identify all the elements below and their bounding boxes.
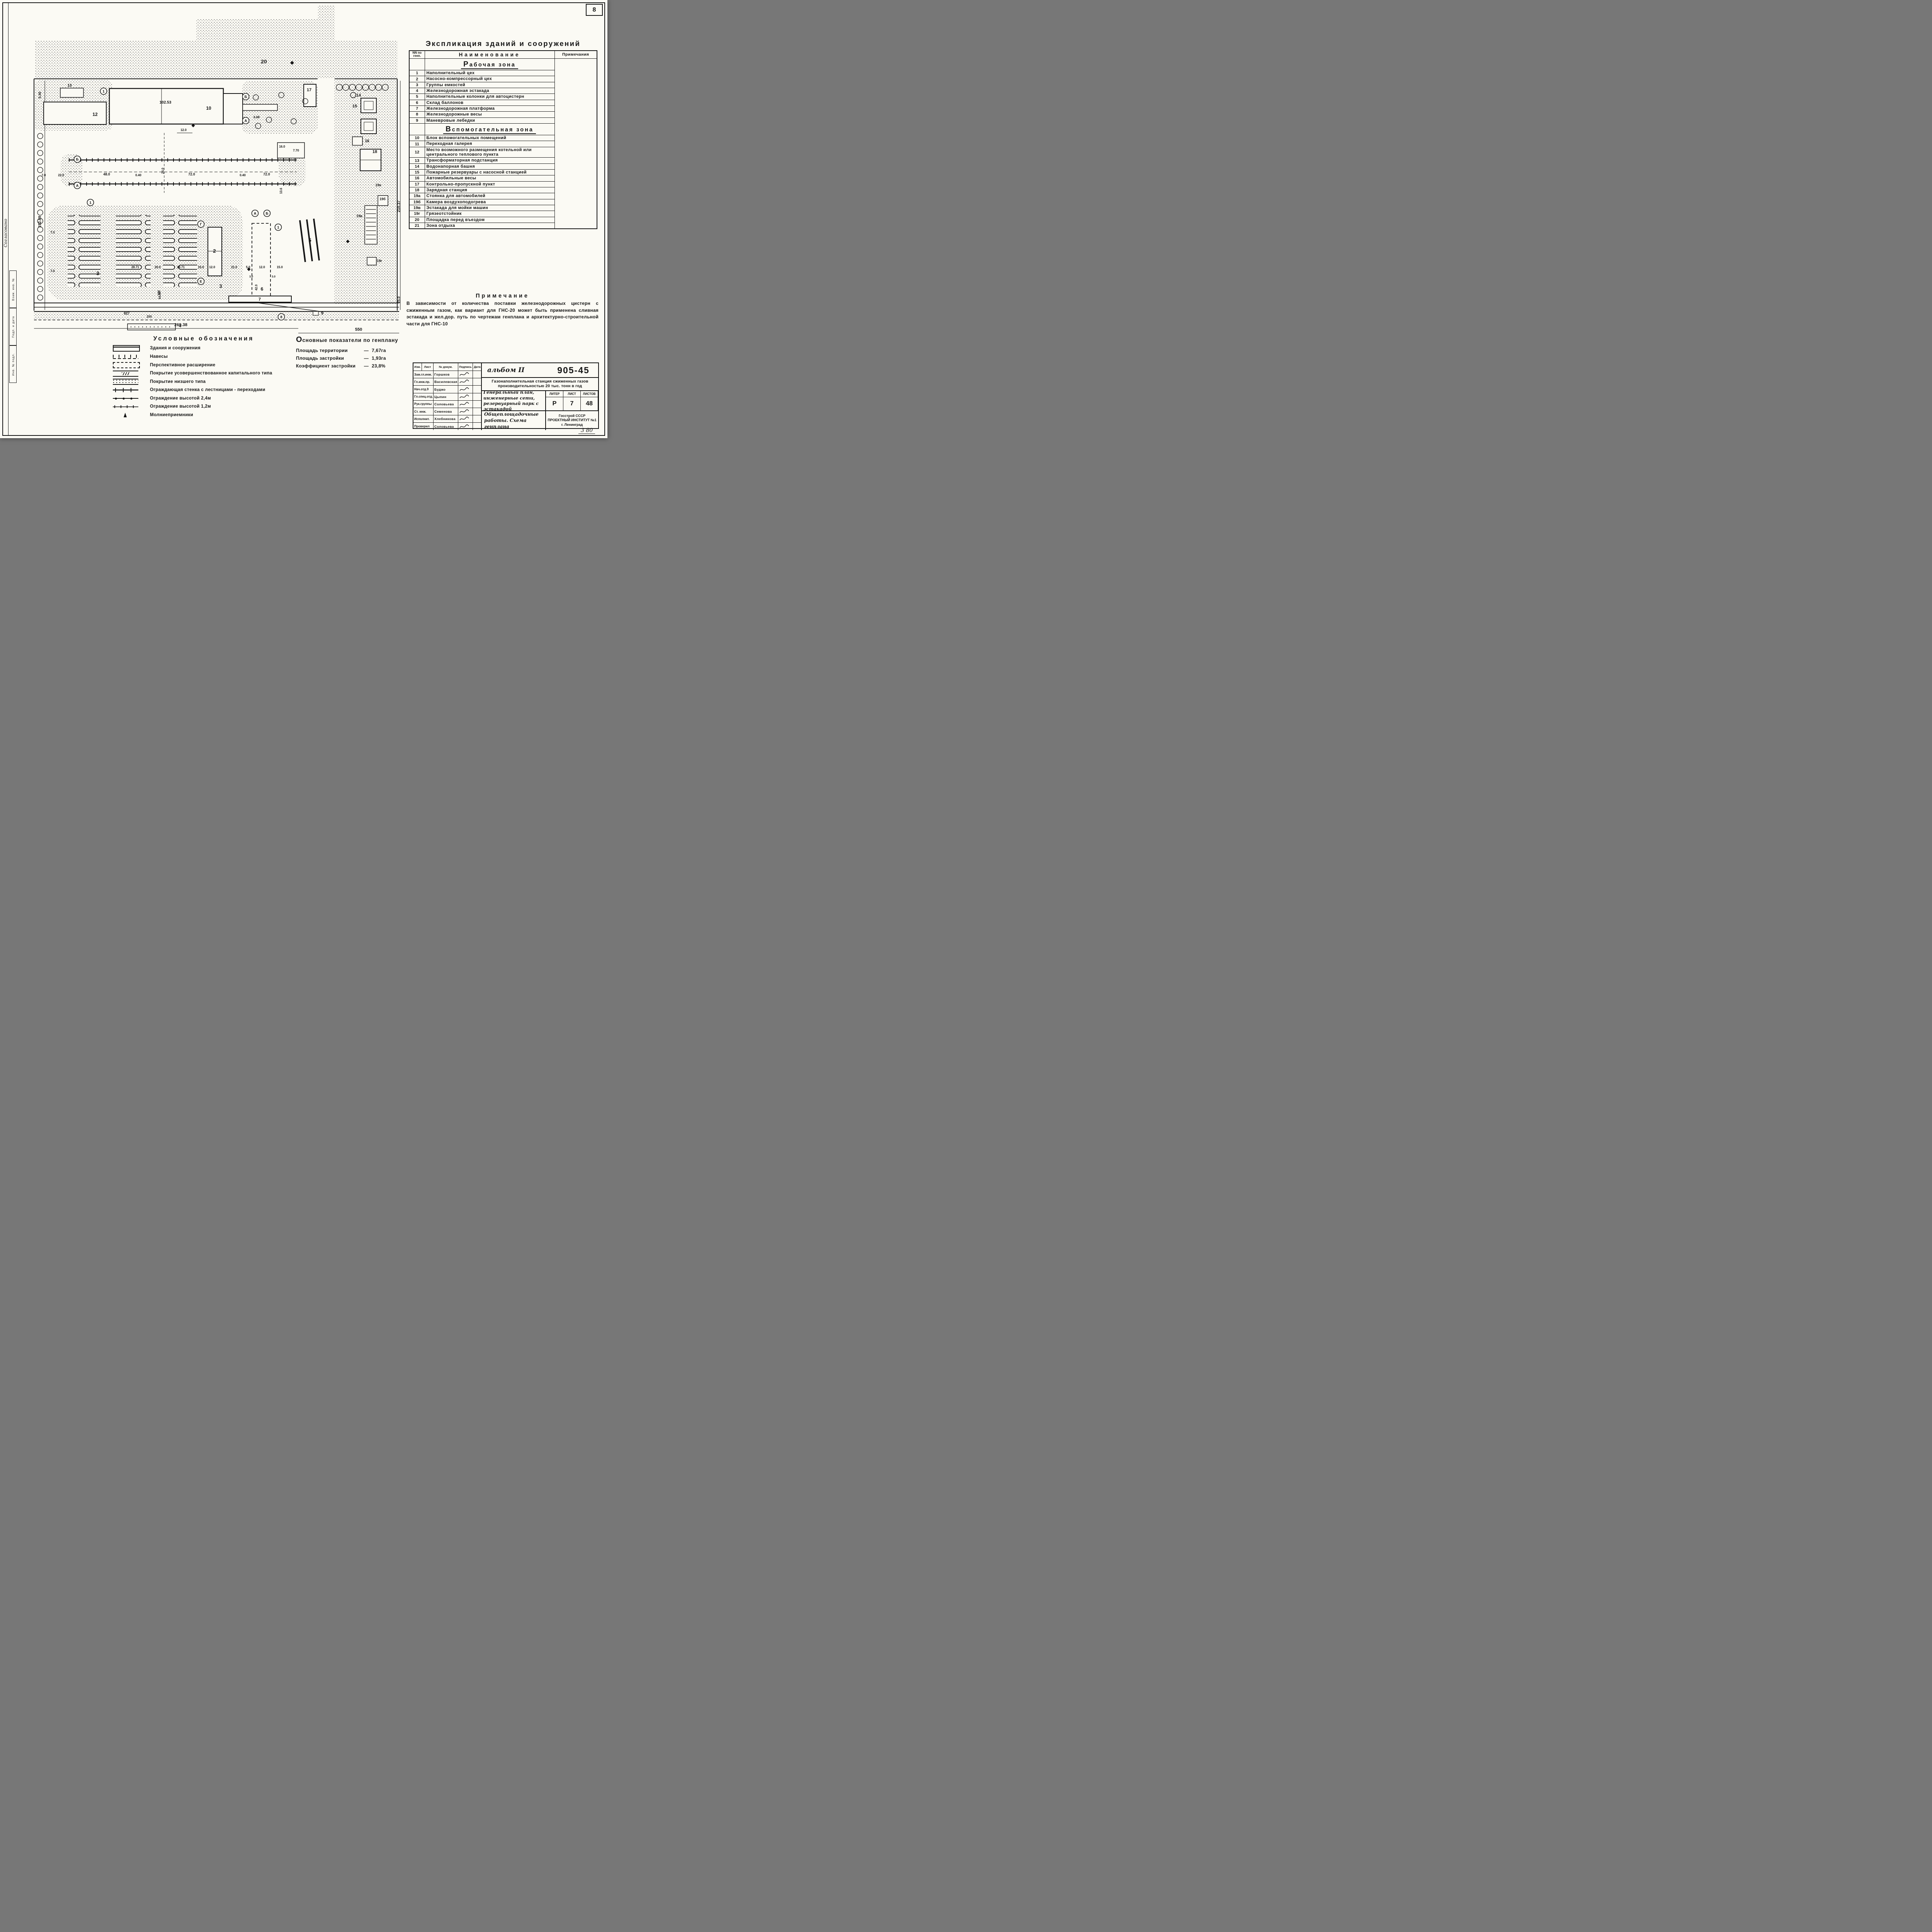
row-name: Грязеотстойник — [425, 211, 554, 217]
plan-label: 72.0 — [263, 172, 270, 176]
inventory-box: Подп. и дата — [9, 308, 17, 345]
stamp-name: Соловьева — [434, 423, 458, 430]
svg-text:Б: Б — [245, 95, 247, 99]
axis-marker: Г — [198, 221, 204, 228]
sheet-frame-inner-line — [8, 2, 9, 436]
stamp-date — [473, 378, 482, 385]
note-text: В зависимости от количества поставки жел… — [406, 300, 599, 328]
stamp-role: Нач.отд.9 — [413, 386, 434, 393]
pav-cap-symbol-icon — [113, 371, 138, 377]
plan-label: 2 — [213, 248, 216, 254]
col-header-name: Наименование — [425, 51, 554, 58]
plan-label: 0.40 — [135, 173, 141, 177]
liter-head-cell: ЛИТЕР — [546, 391, 563, 397]
project-title: Газонаполнительная станция сжиженных газ… — [482, 378, 598, 391]
plan-label: 102.53 — [160, 100, 172, 105]
legend-title: Условные обозначения — [113, 335, 294, 342]
project-code: 905-45 — [549, 363, 598, 377]
stamp-role: Ст. инж. — [413, 408, 434, 415]
title-block-signatures: Изм.Лист№ докум.ПодписьДата Зам.гл.инж.Г… — [413, 363, 482, 430]
indicator-value: 1,93га — [372, 355, 386, 361]
stamp-header-cell: Дата — [473, 363, 482, 371]
legend-item-label: Здания и сооружения — [150, 346, 201, 350]
stamp-row: Ст. инж.Семенова — [413, 408, 481, 415]
row-name: Маневровые лебедки — [425, 117, 554, 123]
stamp-role: Рук.группы — [413, 401, 434, 408]
plan-label: 7.70 — [293, 149, 299, 152]
explication-row: 6Склад баллонов — [409, 100, 597, 105]
svg-text:8: 8 — [280, 315, 282, 320]
plan-label: 3 — [96, 270, 99, 276]
axis-marker: 1 — [275, 224, 282, 231]
legend-item: Перспективное расширение — [113, 362, 294, 368]
explication-row: 13Трансформаторная подстанция2КТПН-630/1… — [409, 158, 597, 163]
plan-label: 25.0 — [397, 296, 401, 303]
liter-grid: ЛИТЕРЛИСТЛИСТОВ Р748 — [546, 391, 598, 410]
row-name: Склад баллонов — [425, 100, 554, 105]
axis-marker: А — [74, 182, 81, 189]
row-name: Зарядная станция — [425, 187, 554, 193]
railway-tracks — [34, 303, 399, 311]
row-number: 19в — [409, 205, 425, 211]
svg-text:1: 1 — [89, 201, 92, 205]
stamp-date — [473, 401, 482, 408]
axis-marker: Б — [264, 210, 270, 217]
lightning-rod-icon: ◆ — [346, 238, 350, 244]
stamp-name: Буджо — [434, 386, 458, 393]
plan-label: 7 — [259, 297, 261, 302]
row-name: Насосно-компрессорный цех — [425, 76, 554, 82]
plan-label: 18 — [372, 150, 377, 154]
plan-label: 210.37 — [397, 200, 401, 212]
plan-label: 3.0 — [272, 276, 276, 278]
row-number: 16 — [409, 175, 425, 181]
explication-row: 12Место возможного размещения котельной … — [409, 147, 597, 158]
work-title: Общеплощадочные работы. Схема генплана — [482, 411, 546, 430]
rail-estacade — [69, 133, 304, 193]
legend-item: Навесы — [113, 354, 294, 360]
row-name: Переходная галерея — [425, 141, 554, 147]
plan-label: 827 — [124, 311, 129, 315]
explication-row: 16Автомобильные весытп 416-7-94 — [409, 175, 597, 181]
row-number: 21 — [409, 223, 425, 229]
plan-label: 19г — [377, 259, 382, 263]
plan-label: 100 — [146, 315, 152, 318]
zone-heading-row: Рабочая зона — [409, 58, 597, 70]
explication-row: 10Блок вспомогательных помещений — [409, 135, 597, 141]
sheet-title: Генеральный план, инженерные сети, резер… — [482, 391, 546, 410]
lightning-rod-icon: ◆ — [191, 122, 195, 128]
plan-label: 24.0 — [161, 168, 165, 174]
col-header-note: Примечания — [554, 51, 597, 58]
stamp-name: Соловьева — [434, 401, 458, 408]
plan-label: 5 — [308, 237, 311, 243]
explication-title: Экспликация зданий и сооружений — [409, 39, 597, 48]
row-number: 18 — [409, 187, 425, 193]
row-number: 7 — [409, 105, 425, 111]
axis-marker: Б — [243, 94, 249, 100]
explication-row: 11Переходная галерея — [409, 141, 597, 147]
row-number: 5 — [409, 94, 425, 100]
signature-mark — [458, 423, 473, 430]
row-number: 3 — [409, 82, 425, 88]
stamp-header-cell: Лист — [422, 363, 434, 371]
row-number: 20 — [409, 217, 425, 223]
axis-marker: 1 — [100, 88, 107, 95]
plan-label: 12 — [92, 112, 98, 117]
stamp-row: ПроверилСоловьева — [413, 423, 481, 430]
signature-mark — [458, 371, 473, 378]
plan-label: 12.0 — [209, 265, 215, 269]
legend-item-label: Ограждение высотой 2,4м — [150, 396, 211, 401]
legend-item: Покрытие усовершенствованное капитальног… — [113, 371, 294, 377]
row-name: Трансформаторная подстанция — [425, 158, 554, 163]
row-number: 19а — [409, 193, 425, 199]
explication-row: 7Железнодорожная платформа — [409, 105, 597, 111]
explication-row: 8Железнодорожные весыРС-150Ц 13В — [409, 112, 597, 117]
explication-table: NN по генп. Наименование Примечания Рабо… — [409, 50, 597, 229]
explication-row: 4Железнодорожная эстакада — [409, 88, 597, 94]
plan-label: 16.0 — [279, 145, 285, 148]
legend-item: Ограждающая стенка с лестницами - перехо… — [113, 387, 294, 393]
legend-item-label: Покрытие усовершенствованное капитальног… — [150, 371, 272, 376]
indicators-section: Основные показатели по генплану Площадь … — [296, 335, 412, 371]
row-name: Пожарные резервуары с насосной станцией — [425, 170, 554, 175]
inventory-box: Инв. № подл. — [9, 345, 17, 383]
signature-mark — [458, 393, 473, 400]
indicators-title: Основные показатели по генплану — [296, 335, 412, 344]
legend-item-label: Ограждающая стенка с лестницами - перехо… — [150, 388, 265, 392]
plan-label: 0.40 — [240, 173, 246, 177]
liter-value-cell: Р — [546, 397, 563, 410]
plan-label: 7.0 — [50, 269, 55, 273]
svg-text:А: А — [254, 212, 257, 216]
stamp-role: Исполнит. — [413, 415, 434, 422]
canopy-symbol-icon — [113, 355, 138, 359]
liter-head-cell: ЛИСТОВ — [581, 391, 598, 397]
svg-text:1: 1 — [277, 226, 279, 230]
stamp-date — [473, 371, 482, 378]
row-name: Группы емкостей — [425, 82, 554, 88]
stamp-row: Гл.инж.пр.Василевская — [413, 378, 481, 386]
row-number: 4 — [409, 88, 425, 94]
plan-label: 12.0 — [180, 128, 187, 132]
row-number: 14 — [409, 163, 425, 169]
axis-marker: 1 — [87, 199, 94, 206]
fence12-symbol-icon — [113, 405, 138, 408]
plan-label: 12.0 — [259, 265, 265, 269]
stamp-date — [473, 386, 482, 393]
approval-handwriting: Согласовано — [3, 219, 8, 247]
explication-row: 18Зарядная станциятп 407-9-8 — [409, 187, 597, 193]
plan-label: 4 — [179, 324, 182, 328]
stamp-name: Хлебникова — [434, 415, 458, 422]
plan-label: 19б — [379, 197, 386, 201]
row-name: Зона отдыха — [425, 223, 554, 229]
signature-mark — [458, 378, 473, 385]
row-name: Водонапорная башня — [425, 163, 554, 169]
row-number: 12 — [409, 147, 425, 158]
explication-row: 19вЭстакада для мойки машинтп 503-288 — [409, 205, 597, 211]
zone-heading-row: Вспомогательная зона — [409, 123, 597, 135]
stamp-name: Горшков — [434, 371, 458, 378]
inventory-box: Взам. инв. № — [9, 270, 17, 308]
stamp-header-cell: Подпись — [458, 363, 473, 371]
row-number: 1 — [409, 70, 425, 76]
note-title: Примечание — [406, 293, 599, 299]
liter-value-cell: 7 — [563, 397, 581, 410]
explication-row: 2Насосно-компрессорный цех — [409, 76, 597, 82]
stamp-role: Гл.инж.пр. — [413, 378, 434, 385]
indicator-value: 23,8% — [372, 363, 386, 369]
legend-item-label: Перспективное расширение — [150, 363, 215, 367]
page-number: 8 — [593, 7, 596, 14]
plan-label: 19в — [356, 214, 362, 218]
row-name: Стоянка для автомобилей — [425, 193, 554, 199]
legend-item: Молниеприемники — [113, 412, 294, 418]
row-number: 19б — [409, 199, 425, 205]
stamp-name: Семенова — [434, 408, 458, 415]
stamp-row: Нач.отд.9Буджо — [413, 386, 481, 393]
legend-section: Условные обозначения Здания и сооружения… — [113, 335, 294, 420]
row-name: Наполнительные колонки для автоцистерн — [425, 94, 554, 100]
lightning-rod-icon: ◆ — [290, 60, 294, 65]
row-name: Автомобильные весы — [425, 175, 554, 181]
row-name: Железнодорожные весы — [425, 112, 554, 117]
svg-text:Б: Б — [76, 158, 79, 162]
plan-label: 5.40 — [38, 92, 42, 99]
plan-label: 72.0 — [188, 172, 195, 176]
fence24-symbol-icon — [113, 396, 138, 401]
indicator-row: Площадь территории—7,67га — [296, 348, 412, 353]
plan-label: 42.0 — [255, 284, 258, 291]
row-name: Эстакада для мойки машин — [425, 205, 554, 211]
legend-item-label: Ограждение высотой 1,2м — [150, 404, 211, 409]
legend-item-label: Навесы — [150, 354, 168, 359]
legend-item: Ограждение высотой 2,4м — [113, 395, 294, 401]
plan-label: 3 — [219, 283, 222, 289]
row-number: 6 — [409, 100, 425, 105]
plan-label: 28.71 — [131, 265, 139, 269]
stamp-date — [473, 408, 482, 415]
wall-symbol-icon — [113, 388, 138, 392]
plan-label: 19а — [375, 183, 381, 187]
indicator-value: 7,67га — [372, 348, 386, 353]
legend-item-label: Покрытие низшего типа — [150, 379, 206, 384]
plan-label: 7.0 — [41, 173, 46, 177]
stamp-header-cell: № докум. — [434, 363, 458, 371]
stamp-date — [473, 415, 482, 422]
explication-row: 1Наполнительный цех — [409, 70, 597, 76]
liter-head-cell: ЛИСТ — [563, 391, 581, 397]
title-block-main: альбом II 905-45 Газонаполнительная стан… — [482, 363, 598, 430]
row-name: Блок вспомогательных помещений — [425, 135, 554, 141]
col-header-num: NN по генп. — [409, 51, 425, 58]
axis-marker: 8 — [278, 314, 285, 320]
tank-groups — [68, 215, 197, 287]
row-number: 11 — [409, 141, 425, 147]
plan-label: 6.68 — [253, 116, 260, 119]
axis-marker: А — [252, 210, 259, 217]
explication-row: 5Наполнительные колонки для автоцистерн — [409, 94, 597, 100]
album-label: альбом II — [482, 363, 549, 377]
explication-row: 3Группы емкостей — [409, 82, 597, 88]
future-symbol-icon — [113, 362, 140, 368]
stamp-row: Зам.гл.инж.Горшков — [413, 371, 481, 378]
liter-value-cell: 48 — [581, 397, 598, 410]
svg-text:Е: Е — [200, 280, 202, 284]
plan-label: 7.0 — [50, 231, 55, 234]
plan-label: 20 — [261, 58, 267, 65]
plan-label: 13.6 — [279, 188, 283, 194]
row-number: 10 — [409, 135, 425, 141]
explication-row: 20Площадка перед въездом— — [409, 217, 597, 223]
plan-label: 5.0 — [246, 265, 250, 269]
row-name: Площадка перед въездом — [425, 217, 554, 223]
legend-item: Ограждение высотой 1,2м — [113, 404, 294, 410]
row-name: Железнодорожная платформа — [425, 105, 554, 111]
svg-text:А: А — [245, 119, 247, 123]
signature-mark — [458, 415, 473, 422]
row-name: Контрольно-пропускной пункт — [425, 181, 554, 187]
indicator-label: Площадь застройки — [296, 355, 361, 361]
stamp-row: Исполнит.Хлебникова — [413, 415, 481, 423]
row-number: 9 — [409, 117, 425, 123]
explication-row: 19гГрязеотстойниктп 503-288 — [409, 211, 597, 217]
pav-low-symbol-icon — [113, 379, 138, 385]
stamp-role: Зам.гл.инж. — [413, 371, 434, 378]
plan-label: 13 — [67, 83, 72, 88]
plan-label: 22.0 — [58, 173, 64, 177]
legend-item: Здания и сооружения — [113, 345, 294, 352]
indicator-label: Коэффициент застройки — [296, 363, 361, 369]
signature-mark — [458, 386, 473, 393]
explication-row: 19аСтоянка для автомобилейтп 503-138 — [409, 193, 597, 199]
signature-mark — [458, 401, 473, 408]
stamp-row: Рук.группыСоловьева — [413, 401, 481, 408]
row-name: Наполнительный цех — [425, 70, 554, 76]
plan-label: 64.50 — [158, 291, 162, 299]
indicator-label: Площадь территории — [296, 348, 361, 353]
stamp-role: Проверил — [413, 423, 434, 430]
title-block: Изм.Лист№ докум.ПодписьДата Зам.гл.инж.Г… — [413, 362, 599, 429]
plan-label: 3.0 — [249, 276, 253, 278]
axis-marker: А — [243, 117, 249, 124]
page-number-box: 8 — [586, 4, 603, 16]
explication-section: Экспликация зданий и сооружений NN по ге… — [409, 39, 597, 229]
plan-label: 9 — [321, 311, 323, 316]
plan-label: 6 — [261, 286, 264, 292]
plan-label: 48.0 — [103, 172, 110, 176]
axis-marker: Е — [198, 278, 204, 285]
svg-text:Г: Г — [200, 223, 202, 227]
explication-row: 19бКамера воздухоподогреватп 503-138 — [409, 199, 597, 205]
plan-label: 14 — [356, 93, 361, 98]
site-plan-drawing: 20◆◆◆◆102.53106.6812.01213171415161819а1… — [11, 5, 402, 338]
axis-marker: Б — [74, 156, 81, 163]
explication-row: 15Пожарные резервуары с насосной станцие… — [409, 170, 597, 175]
row-number: 19г — [409, 211, 425, 217]
plan-label: 192.69 — [38, 216, 42, 228]
svg-text:1: 1 — [102, 90, 105, 94]
signature-mark — [458, 408, 473, 415]
plan-label: 15.0 — [198, 265, 204, 269]
drawing-sheet: 8 Согласовано — [0, 0, 607, 438]
plan-label: 15 — [352, 104, 357, 109]
building-symbol-icon — [113, 345, 140, 352]
explication-row: 9Маневровые лебедки — [409, 117, 597, 123]
row-name: Место возможного размещения котельной ил… — [425, 147, 554, 158]
legend-item: Покрытие низшего типа — [113, 379, 294, 385]
note-section: Примечание В зависимости от количества п… — [406, 293, 599, 328]
plan-label: 15.0 — [277, 265, 283, 269]
stamp-date — [473, 393, 482, 400]
explication-row: 14Водонапорная башнятп 901-5-21/70 — [409, 163, 597, 169]
plan-label: 21.0 — [231, 265, 237, 269]
legend-item-label: Молниеприемники — [150, 413, 193, 417]
svg-text:А: А — [76, 184, 79, 188]
plan-label: 550 — [355, 327, 362, 332]
indicator-row: Площадь застройки—1,93га — [296, 355, 412, 361]
row-name: Камера воздухоподогрева — [425, 199, 554, 205]
row-number: 15 — [409, 170, 425, 175]
indicator-row: Коэффициент застройки—23,8% — [296, 363, 412, 369]
row-number: 8 — [409, 112, 425, 117]
lightning-symbol-icon — [113, 412, 138, 418]
plan-label: 17 — [307, 88, 311, 92]
stamp-date — [473, 423, 482, 430]
row-name: Железнодорожная эстакада — [425, 88, 554, 94]
svg-text:Б: Б — [266, 212, 269, 216]
explication-row: 17Контрольно-пропускной пункттп 416-5-9,… — [409, 181, 597, 187]
stamp-name: Василевская — [434, 378, 458, 385]
row-number: 17 — [409, 181, 425, 187]
stamp-row: Гл.спец.отд.Цыпин — [413, 393, 481, 401]
plan-label: 16 — [365, 139, 369, 143]
plan-label: 20.0 — [155, 265, 161, 269]
row-number: 2 — [409, 76, 425, 82]
explication-row: 21Зона отдыха— — [409, 223, 597, 229]
stamp-header-cell: Изм. — [413, 363, 422, 371]
corner-annotation: 3 80 — [578, 427, 595, 434]
row-number: 13 — [409, 158, 425, 163]
plan-label: 10 — [206, 105, 211, 111]
plan-label: 28.71 — [177, 265, 185, 269]
stamp-role: Гл.спец.отд. — [413, 393, 434, 400]
stamp-name: Цыпин — [434, 393, 458, 400]
site-plan: 20◆◆◆◆102.53106.6812.01213171415161819а1… — [11, 5, 402, 338]
